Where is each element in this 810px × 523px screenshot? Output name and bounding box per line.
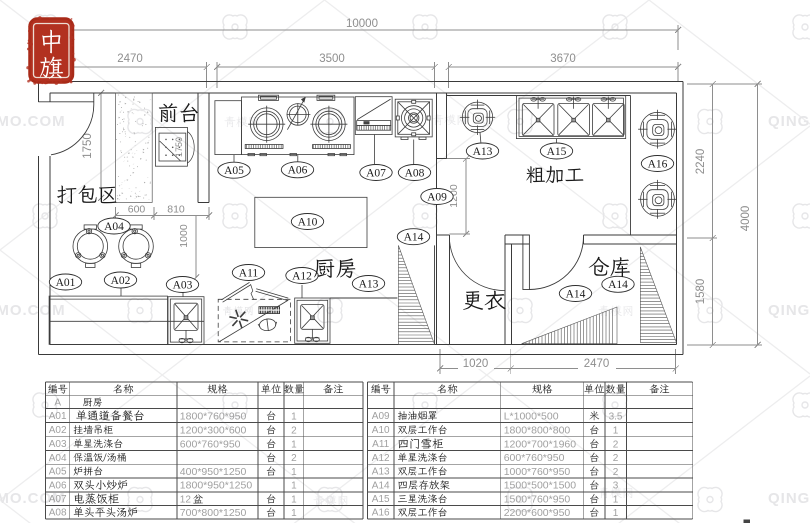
svg-text:QINGMO.COM: QINGMO.COM bbox=[0, 302, 66, 319]
svg-text:1: 1 bbox=[291, 494, 297, 505]
svg-text:600*760*950: 600*760*950 bbox=[504, 452, 565, 464]
svg-text:A13: A13 bbox=[372, 467, 390, 478]
svg-text:2: 2 bbox=[613, 453, 619, 464]
svg-text:2470: 2470 bbox=[584, 358, 610, 370]
svg-text:A16: A16 bbox=[372, 508, 390, 519]
svg-text:A12: A12 bbox=[372, 453, 390, 464]
svg-text:A14: A14 bbox=[404, 232, 424, 244]
svg-text:1200*300*600: 1200*300*600 bbox=[180, 424, 247, 436]
svg-text:A06: A06 bbox=[288, 165, 308, 177]
svg-text:A03: A03 bbox=[173, 279, 193, 291]
svg-text:A14: A14 bbox=[372, 481, 390, 492]
svg-text:A06: A06 bbox=[49, 481, 67, 492]
svg-text:1: 1 bbox=[613, 425, 619, 436]
svg-text:A02: A02 bbox=[111, 275, 131, 287]
svg-text:1: 1 bbox=[291, 467, 297, 478]
svg-text:2: 2 bbox=[613, 467, 619, 478]
svg-text:2240: 2240 bbox=[695, 149, 707, 175]
svg-text:A01: A01 bbox=[49, 411, 67, 422]
svg-text:12: 12 bbox=[180, 494, 192, 505]
svg-text:1800*800*800: 1800*800*800 bbox=[504, 424, 571, 436]
svg-text:1: 1 bbox=[613, 508, 619, 519]
svg-text:A15: A15 bbox=[372, 494, 390, 505]
svg-text:A05: A05 bbox=[49, 467, 67, 478]
svg-text:2: 2 bbox=[613, 439, 619, 450]
svg-text:2: 2 bbox=[291, 425, 297, 436]
svg-text:1750: 1750 bbox=[174, 137, 184, 157]
svg-text:4000: 4000 bbox=[740, 206, 752, 232]
svg-text:A10: A10 bbox=[298, 216, 318, 228]
svg-text:1000: 1000 bbox=[178, 224, 190, 248]
svg-text:1200*700*1960: 1200*700*1960 bbox=[504, 438, 577, 450]
svg-text:QINGMO.COM: QINGMO.COM bbox=[768, 302, 810, 319]
svg-text:600: 600 bbox=[128, 204, 146, 216]
svg-text:A05: A05 bbox=[224, 165, 244, 177]
svg-text:A15: A15 bbox=[547, 146, 567, 158]
svg-text:1: 1 bbox=[613, 494, 619, 505]
svg-text:1500*760*950: 1500*760*950 bbox=[504, 493, 571, 505]
svg-text:A14: A14 bbox=[566, 288, 586, 300]
svg-text:3.5: 3.5 bbox=[609, 411, 623, 422]
svg-text:A03: A03 bbox=[49, 439, 67, 450]
svg-text:A04: A04 bbox=[49, 453, 67, 464]
svg-text:A16: A16 bbox=[648, 158, 668, 170]
svg-text:A07: A07 bbox=[366, 167, 386, 179]
svg-text:A12: A12 bbox=[292, 270, 312, 282]
svg-text:3: 3 bbox=[613, 481, 619, 492]
svg-text:A02: A02 bbox=[49, 425, 67, 436]
svg-text:1800*950*1250: 1800*950*1250 bbox=[180, 480, 253, 492]
svg-text:600*760*950: 600*760*950 bbox=[180, 438, 241, 450]
svg-text:A14: A14 bbox=[608, 279, 628, 291]
svg-text:QINGMO.COM: QINGMO.COM bbox=[0, 113, 66, 130]
svg-text:1580: 1580 bbox=[695, 279, 707, 305]
svg-text:1000*760*950: 1000*760*950 bbox=[504, 466, 571, 478]
svg-text:400*950*1250: 400*950*1250 bbox=[180, 466, 247, 478]
svg-text:A04: A04 bbox=[104, 221, 124, 233]
svg-text:1: 1 bbox=[291, 411, 297, 422]
svg-text:A09: A09 bbox=[427, 191, 447, 203]
svg-text:3500: 3500 bbox=[319, 53, 345, 65]
svg-text:1020: 1020 bbox=[463, 358, 489, 370]
svg-text:1: 1 bbox=[291, 481, 297, 492]
svg-text:A07: A07 bbox=[49, 494, 67, 505]
svg-text:QINGMO.COM: QINGMO.COM bbox=[768, 490, 810, 507]
svg-text:700*800*1250: 700*800*1250 bbox=[180, 507, 247, 519]
svg-text:2200*600*950: 2200*600*950 bbox=[504, 507, 571, 519]
svg-text:A13: A13 bbox=[359, 278, 379, 290]
svg-text:A10: A10 bbox=[372, 425, 390, 436]
svg-text:3670: 3670 bbox=[550, 53, 576, 65]
svg-text:1800*760*950: 1800*760*950 bbox=[180, 410, 247, 422]
svg-text:A08: A08 bbox=[49, 508, 67, 519]
svg-text:A01: A01 bbox=[56, 277, 76, 289]
svg-text:A08: A08 bbox=[405, 167, 425, 179]
svg-text:2470: 2470 bbox=[117, 53, 143, 65]
svg-text:10000: 10000 bbox=[346, 18, 378, 30]
svg-text:2: 2 bbox=[291, 453, 297, 464]
svg-text:A: A bbox=[54, 398, 61, 409]
svg-text:810: 810 bbox=[167, 204, 185, 216]
svg-text:1: 1 bbox=[291, 508, 297, 519]
svg-text:1500*500*1500: 1500*500*1500 bbox=[504, 480, 577, 492]
svg-text:1750: 1750 bbox=[82, 133, 94, 159]
svg-text:A11: A11 bbox=[239, 267, 259, 279]
svg-text:1: 1 bbox=[291, 439, 297, 450]
svg-text:A13: A13 bbox=[473, 146, 493, 158]
svg-text:L*1000*500: L*1000*500 bbox=[504, 410, 559, 422]
svg-text:A11: A11 bbox=[372, 439, 389, 450]
svg-text:A09: A09 bbox=[372, 411, 390, 422]
svg-text:QINGMO.COM: QINGMO.COM bbox=[768, 113, 810, 130]
